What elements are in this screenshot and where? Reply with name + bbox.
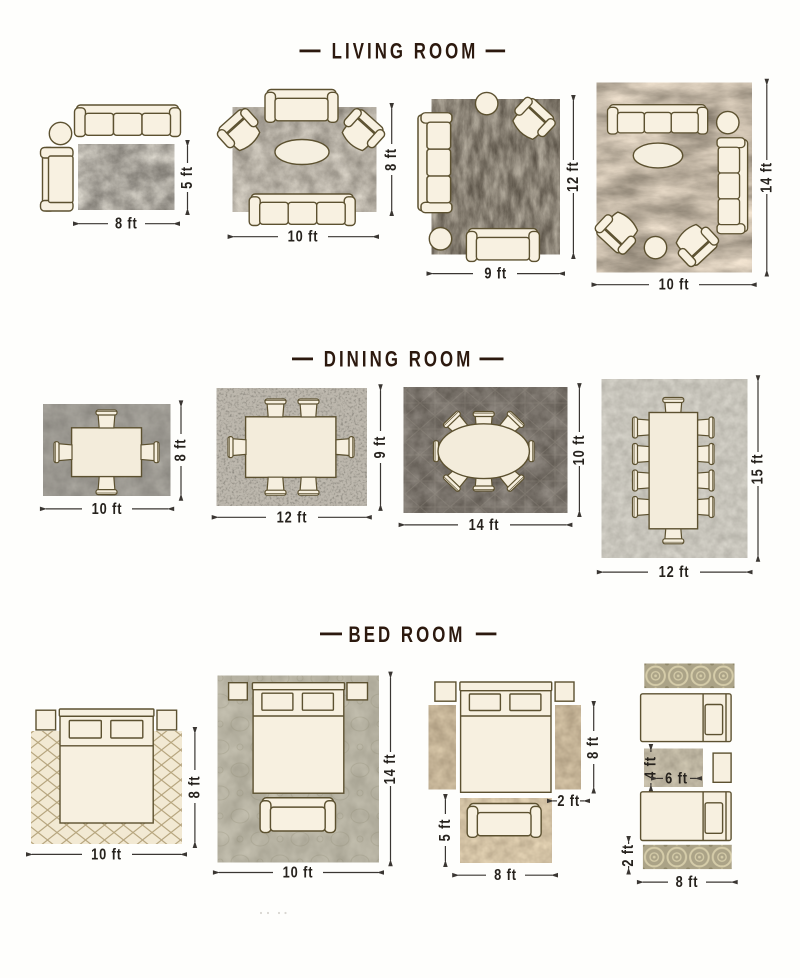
- svg-text:12 ft: 12 ft: [565, 161, 583, 192]
- svg-text:10 ft: 10 ft: [288, 228, 319, 246]
- svg-text:4 ft: 4 ft: [642, 756, 660, 779]
- svg-text:14 ft: 14 ft: [382, 754, 400, 785]
- svg-text:BED ROOM: BED ROOM: [348, 623, 465, 648]
- svg-text:14 ft: 14 ft: [469, 517, 500, 535]
- svg-text:5 ft: 5 ft: [437, 819, 455, 842]
- svg-text:10 ft: 10 ft: [91, 846, 122, 864]
- svg-text:12 ft: 12 ft: [277, 509, 308, 527]
- svg-text:10 ft: 10 ft: [571, 435, 589, 466]
- svg-text:14 ft: 14 ft: [758, 162, 776, 193]
- svg-text:10 ft: 10 ft: [92, 501, 123, 519]
- svg-text:10 ft: 10 ft: [283, 864, 314, 882]
- svg-text:DINING ROOM: DINING ROOM: [324, 347, 474, 372]
- svg-text:2 ft: 2 ft: [557, 793, 580, 811]
- svg-text:12 ft: 12 ft: [659, 564, 690, 582]
- svg-text:9 ft: 9 ft: [372, 436, 390, 459]
- svg-text:8 ft: 8 ft: [186, 776, 204, 799]
- svg-text:6 ft: 6 ft: [665, 770, 688, 788]
- svg-text:LIVING ROOM: LIVING ROOM: [332, 39, 479, 64]
- svg-text:8 ft: 8 ft: [383, 148, 401, 171]
- svg-text:8 ft: 8 ft: [585, 736, 603, 759]
- svg-text:2 ft: 2 ft: [620, 844, 638, 867]
- svg-text:8 ft: 8 ft: [676, 874, 699, 892]
- svg-text:8 ft: 8 ft: [494, 867, 517, 885]
- svg-text:15 ft: 15 ft: [749, 454, 767, 485]
- svg-text:8 ft: 8 ft: [172, 439, 190, 462]
- svg-text:8 ft: 8 ft: [115, 215, 138, 233]
- svg-text:9 ft: 9 ft: [484, 265, 507, 283]
- svg-text:10 ft: 10 ft: [659, 276, 690, 294]
- svg-text:5 ft: 5 ft: [179, 166, 197, 189]
